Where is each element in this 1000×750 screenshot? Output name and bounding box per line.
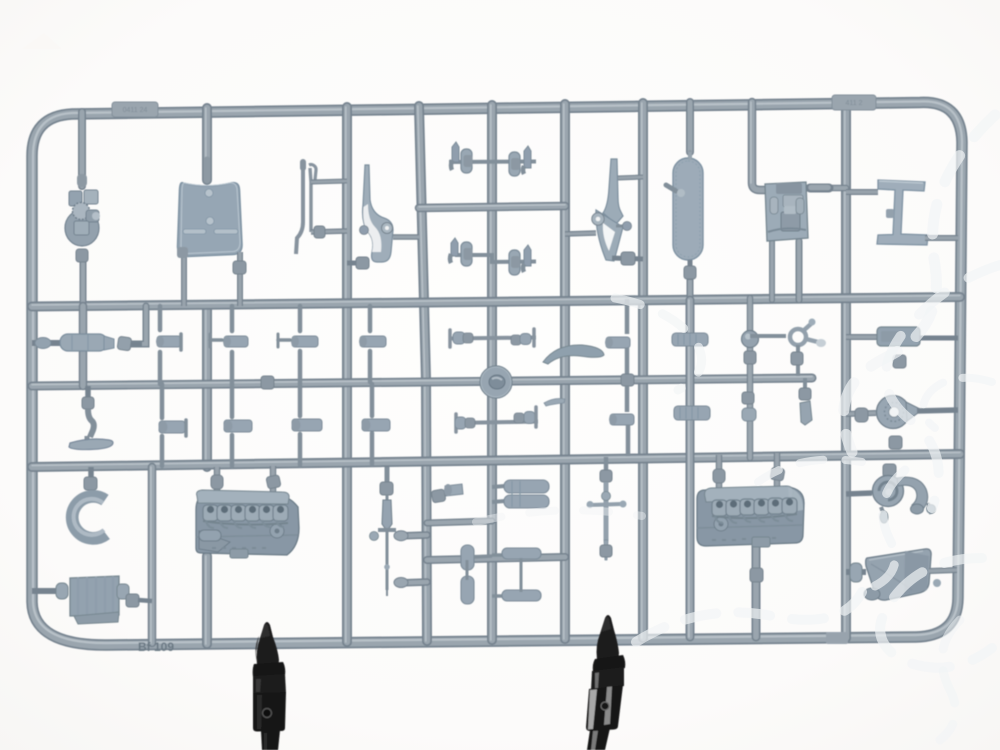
svg-text:Bf 109: Bf 109 <box>138 640 174 654</box>
svg-text:0411 24: 0411 24 <box>123 107 148 114</box>
svg-text:411 2: 411 2 <box>846 100 863 107</box>
